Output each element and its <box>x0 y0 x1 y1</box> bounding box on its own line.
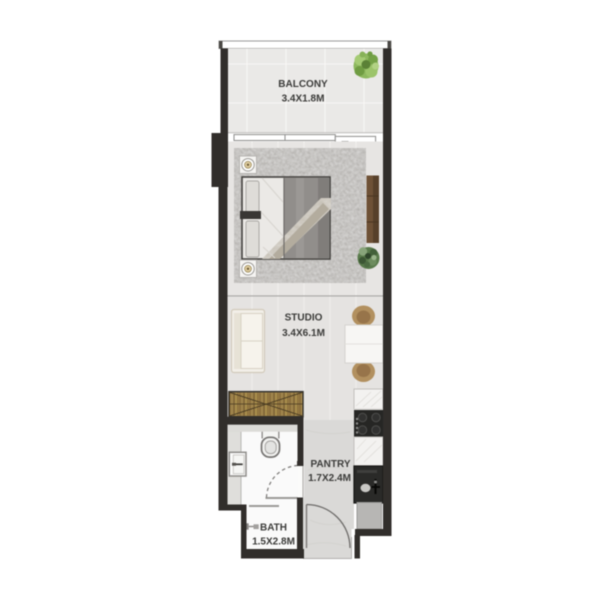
svg-text:PANTRY: PANTRY <box>311 459 351 470</box>
svg-text:3.4X6.1M: 3.4X6.1M <box>282 328 325 339</box>
svg-text:1.5X2.8M: 1.5X2.8M <box>252 537 295 548</box>
svg-text:3.4X1.8M: 3.4X1.8M <box>282 94 325 105</box>
svg-text:STUDIO: STUDIO <box>285 313 323 324</box>
svg-text:BATH: BATH <box>260 523 287 534</box>
svg-text:BALCONY: BALCONY <box>278 79 328 90</box>
svg-text:1.7X2.4M: 1.7X2.4M <box>308 473 351 484</box>
